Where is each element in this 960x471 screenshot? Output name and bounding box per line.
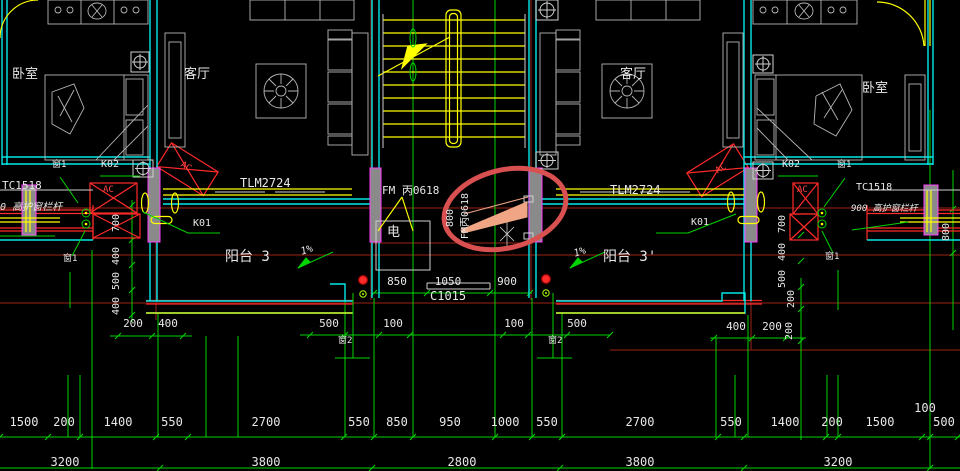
dim-label: 500 xyxy=(778,270,788,288)
dim-label: 3200 xyxy=(824,456,853,468)
window1-tag: 窗1 xyxy=(825,253,836,263)
bay-window-label-left: TC1518 xyxy=(2,180,42,191)
room-label-living-left: 客厅 xyxy=(184,68,200,83)
room-label-living-right: 客厅 xyxy=(620,68,636,83)
dim-label: 550 xyxy=(536,416,558,428)
entry-door-arc-right xyxy=(877,2,924,46)
dim-label: 200 xyxy=(123,318,143,329)
mark-k02-right: K02 xyxy=(782,160,800,170)
dim-label: 700 xyxy=(778,215,788,233)
window1-tag: 窗1 xyxy=(837,161,848,171)
highlight-annotation xyxy=(435,156,574,262)
star-symbol-icon xyxy=(500,221,514,249)
room-label-bedroom-left: 卧室 xyxy=(12,68,28,83)
furniture xyxy=(45,0,925,160)
window1-tag: 窗1 xyxy=(63,255,74,265)
ac-label: AC xyxy=(103,186,114,195)
door-label-tlm-right: TLM2724 xyxy=(610,184,661,196)
axis-grid xyxy=(0,0,960,471)
tv-cabinet-right xyxy=(723,33,743,147)
tv-cabinet-bedroom-right xyxy=(905,75,925,160)
dim-label: 3800 xyxy=(626,456,655,468)
dim-label: 100 xyxy=(504,318,524,329)
bed-right xyxy=(755,75,862,160)
column-crosshair-symbols xyxy=(131,0,773,179)
stair-arrowhead xyxy=(402,44,426,68)
dim-label: 850 xyxy=(386,416,408,428)
dim-label: 400 xyxy=(112,297,122,315)
mark-k01-right: K01 xyxy=(691,218,709,228)
wardrobe-right xyxy=(753,0,857,24)
balcony-label-right: 阳台 3' xyxy=(603,250,656,264)
fire-door-label-rotated: FM丙0618 xyxy=(461,193,471,239)
dim-label: 500 xyxy=(319,318,339,329)
dim-label: 200 xyxy=(762,321,782,332)
dim-label: 2800 xyxy=(448,456,477,468)
dim-label: 900 xyxy=(497,276,517,287)
mark-k01-left: K01 xyxy=(193,219,211,229)
highlight-ellipse xyxy=(435,156,574,262)
window-c1015-label: C1015 xyxy=(430,290,466,302)
dim-label: 2700 xyxy=(252,416,281,428)
dim-label: 400 xyxy=(112,247,122,265)
dim-label: 400 xyxy=(726,321,746,332)
dim-label: 1500 xyxy=(866,416,895,428)
balcony-label-left: 阳台 3 xyxy=(225,250,270,264)
stair-rail xyxy=(446,10,461,147)
wardrobe-left xyxy=(48,0,148,24)
ac-platform-right xyxy=(790,214,818,240)
cad-linework xyxy=(0,0,960,471)
dim-label: 700 xyxy=(112,214,122,232)
sofa-right xyxy=(540,30,580,155)
dim-label: 550 xyxy=(161,416,183,428)
room-label-bedroom-right: 卧室 xyxy=(862,82,878,97)
dim-label: 500 xyxy=(933,416,955,428)
dim-label: 1400 xyxy=(771,416,800,428)
tea-table-left xyxy=(256,64,306,118)
dim-label: 550 xyxy=(720,416,742,428)
tv-cabinet-left xyxy=(165,33,185,147)
fire-door-width-rotated: 800 xyxy=(446,209,456,227)
ac-label: AC xyxy=(797,186,808,195)
dim-label: 1050 xyxy=(435,276,462,287)
dim-label: 550 xyxy=(348,416,370,428)
dim-label: 200 xyxy=(821,416,843,428)
dim-label: 950 xyxy=(439,416,461,428)
dim-label: 200 xyxy=(785,322,795,340)
dim-label: 850 xyxy=(387,276,407,287)
drain-dot-right xyxy=(542,275,551,284)
dim-label: 800 xyxy=(942,223,952,241)
sofa-left xyxy=(328,30,368,155)
window1-tag: 窗1 xyxy=(52,161,63,171)
dim-label: 400 xyxy=(778,243,788,261)
dim-label: 1000 xyxy=(491,416,520,428)
dim-label: 500 xyxy=(112,272,122,290)
dim-label: 400 xyxy=(158,318,178,329)
dim-label: 100 xyxy=(383,318,403,329)
cabinet-left xyxy=(250,0,354,20)
stair-treads xyxy=(383,20,525,137)
dim-label: 200 xyxy=(53,416,75,428)
drain-dot-left xyxy=(359,276,368,285)
dim-label: 2700 xyxy=(626,416,655,428)
electric-shaft-label: 电 xyxy=(387,226,400,239)
cad-floorplan-viewport: 卧室 客厅 客厅 卧室 TLM2724 TLM2724 FM 丙0618 800… xyxy=(0,0,960,471)
dim-label: 200 xyxy=(787,290,797,308)
rail-note-right: 900 高护窗栏杆 xyxy=(851,205,918,214)
white-linework xyxy=(0,0,960,289)
dim-label: 100 xyxy=(914,402,936,414)
dim-label: 3200 xyxy=(51,456,80,468)
bay-window-label-right: TC1518 xyxy=(856,183,892,193)
door-label-tlm-left: TLM2724 xyxy=(240,177,291,189)
dim-label: 1500 xyxy=(10,416,39,428)
walls xyxy=(0,0,960,313)
electric-room xyxy=(376,221,430,270)
dim-label: 3800 xyxy=(252,456,281,468)
dim-label: 1400 xyxy=(104,416,133,428)
dim-label: 500 xyxy=(567,318,587,329)
cabinet-right xyxy=(596,0,700,20)
window2-tag: 窗2 xyxy=(338,337,349,347)
fire-door-label: FM 丙0618 xyxy=(382,185,439,196)
entry-door-arc-left xyxy=(0,0,38,38)
rail-note-left: 900 高护窗栏杆 xyxy=(0,203,62,213)
mark-k02-left: K02 xyxy=(101,160,119,170)
window2-tag: 窗2 xyxy=(548,337,559,347)
bed-left xyxy=(45,75,148,160)
